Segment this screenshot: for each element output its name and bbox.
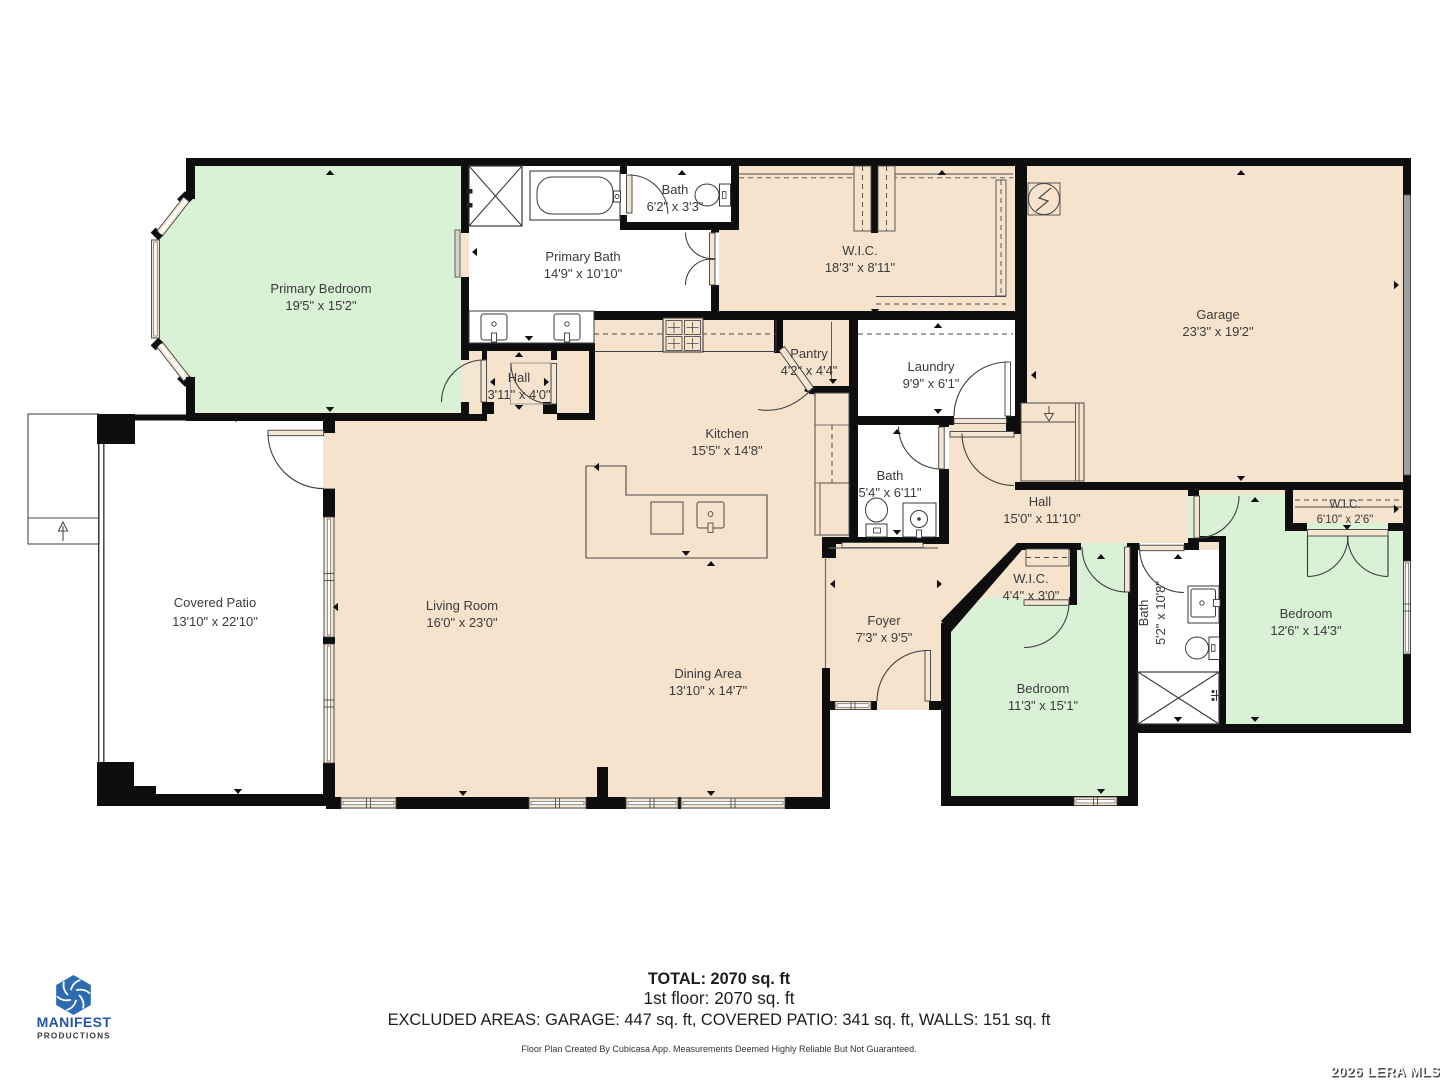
svg-text:7'3" x 9'5": 7'3" x 9'5" [856, 630, 913, 645]
svg-text:9'9" x 6'1": 9'9" x 6'1" [903, 376, 960, 391]
svg-text:15'5" x 14'8": 15'5" x 14'8" [691, 443, 763, 458]
svg-text:Bath: Bath [662, 182, 689, 197]
svg-text:6'2" x 3'3": 6'2" x 3'3" [647, 199, 704, 214]
svg-text:PRODUCTIONS: PRODUCTIONS [37, 1032, 111, 1041]
svg-text:19'5" x 15'2": 19'5" x 15'2" [285, 298, 357, 313]
svg-text:4'2" x 4'4": 4'2" x 4'4" [781, 363, 838, 378]
svg-text:1st floor: 2070 sq. ft: 1st floor: 2070 sq. ft [644, 988, 795, 1008]
svg-text:Laundry: Laundry [908, 359, 955, 374]
svg-text:13'10" x 22'10": 13'10" x 22'10" [172, 614, 258, 629]
svg-text:Bath: Bath [1136, 600, 1151, 627]
svg-text:Bedroom: Bedroom [1017, 681, 1070, 696]
svg-text:MANIFEST: MANIFEST [37, 1014, 112, 1030]
svg-text:16'0" x 23'0": 16'0" x 23'0" [426, 615, 498, 630]
svg-text:14'9" x 10'10": 14'9" x 10'10" [544, 266, 623, 281]
svg-text:3'11" x 4'0": 3'11" x 4'0" [487, 387, 550, 402]
svg-text:15'0" x 11'10": 15'0" x 11'10" [1003, 511, 1081, 526]
svg-text:Hall: Hall [508, 370, 531, 385]
svg-text:Primary Bath: Primary Bath [545, 249, 620, 264]
svg-text:W.I.C.: W.I.C. [1329, 499, 1360, 511]
svg-text:11'3" x 15'1": 11'3" x 15'1" [1008, 698, 1079, 713]
svg-text:23'3" x 19'2": 23'3" x 19'2" [1182, 324, 1254, 339]
svg-text:6'10" x 2'6": 6'10" x 2'6" [1317, 514, 1374, 526]
svg-text:12'6" x 14'3": 12'6" x 14'3" [1270, 623, 1342, 638]
svg-text:Hall: Hall [1029, 494, 1052, 509]
svg-text:2026 LERA MLS: 2026 LERA MLS [1330, 1064, 1440, 1079]
svg-text:13'10" x 14'7": 13'10" x 14'7" [669, 683, 748, 698]
svg-text:Covered Patio: Covered Patio [174, 595, 256, 610]
svg-text:4'4" x 3'0": 4'4" x 3'0" [1003, 588, 1060, 603]
svg-text:Primary Bedroom: Primary Bedroom [270, 281, 371, 296]
svg-text:Foyer: Foyer [867, 613, 901, 628]
svg-text:Bath: Bath [877, 468, 904, 483]
svg-text:18'3" x 8'11": 18'3" x 8'11" [825, 260, 896, 275]
svg-text:5'4" x 6'11": 5'4" x 6'11" [858, 485, 921, 500]
svg-text:Living Room: Living Room [426, 598, 498, 613]
svg-text:TOTAL: 2070 sq. ft: TOTAL: 2070 sq. ft [648, 970, 791, 988]
svg-text:Pantry: Pantry [790, 346, 828, 361]
svg-text:Kitchen: Kitchen [705, 426, 748, 441]
svg-text:5'2" x 10'8": 5'2" x 10'8" [1153, 581, 1168, 645]
svg-text:EXCLUDED AREAS: GARAGE: 447 sq: EXCLUDED AREAS: GARAGE: 447 sq. ft, COVE… [388, 1011, 1051, 1029]
svg-text:W.I.C.: W.I.C. [1013, 571, 1048, 586]
svg-text:Floor Plan Created By Cubicasa: Floor Plan Created By Cubicasa App. Meas… [521, 1044, 916, 1054]
svg-text:Dining Area: Dining Area [674, 666, 742, 681]
svg-text:Bedroom: Bedroom [1280, 606, 1333, 621]
svg-text:Garage: Garage [1196, 307, 1239, 322]
svg-text:W.I.C.: W.I.C. [842, 243, 877, 258]
